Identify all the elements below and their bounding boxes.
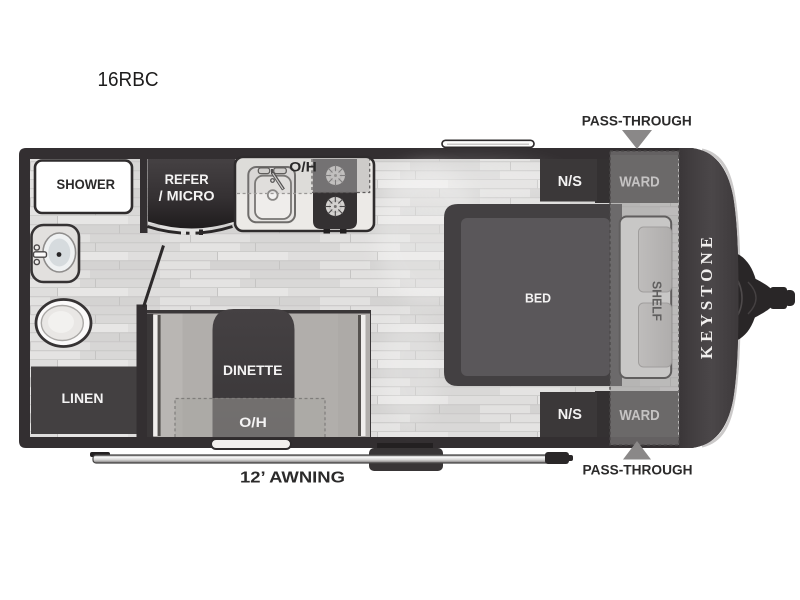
svg-text:KEYSTONE: KEYSTONE [697, 233, 716, 359]
svg-text:12’ AWNING: 12’ AWNING [240, 470, 345, 487]
svg-text:N/S: N/S [558, 174, 583, 190]
svg-text:LINEN: LINEN [62, 390, 104, 406]
svg-text:PASS-THROUGH: PASS-THROUGH [583, 463, 693, 478]
svg-text:REFER: REFER [165, 171, 209, 187]
svg-text:16RBC: 16RBC [98, 69, 159, 91]
svg-text:PASS-THROUGH: PASS-THROUGH [582, 114, 692, 129]
svg-text:BED: BED [525, 291, 551, 306]
svg-text:O/H: O/H [289, 159, 317, 175]
svg-text:N/S: N/S [558, 407, 583, 423]
svg-text:SHOWER: SHOWER [57, 176, 116, 192]
svg-text:O/H: O/H [239, 414, 267, 430]
svg-text:DINETTE: DINETTE [223, 362, 283, 378]
svg-text:/ MICRO: / MICRO [159, 188, 215, 204]
